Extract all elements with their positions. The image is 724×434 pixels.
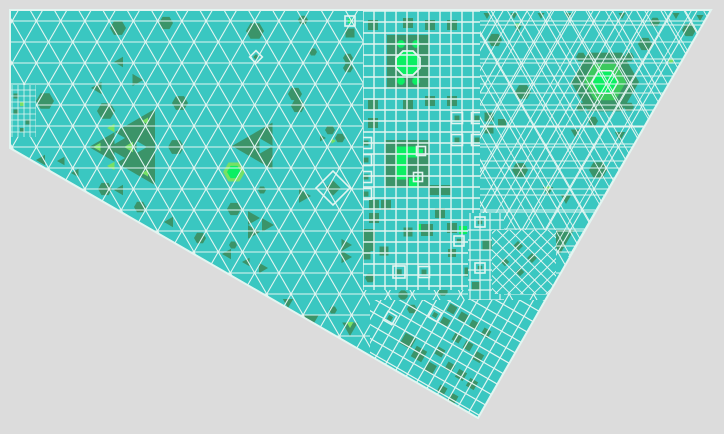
tiling-canvas: [0, 0, 724, 434]
feature-sq: [472, 282, 480, 290]
feature-sq: [459, 226, 467, 234]
feature-sq: [425, 96, 435, 106]
pattern-viewport: [0, 0, 724, 434]
feature-sq: [380, 247, 389, 256]
feature-sq: [397, 169, 408, 180]
feature-sq: [403, 100, 413, 110]
feature-sq: [20, 102, 24, 106]
feature-sq: [397, 147, 408, 158]
feature-oct: [397, 77, 404, 84]
feature-sq: [368, 100, 378, 110]
feature-sq: [20, 128, 24, 132]
feature-sq: [368, 118, 378, 128]
feature-sq: [421, 224, 433, 236]
feature-oct: [398, 290, 407, 299]
feature-sq: [404, 228, 413, 237]
feature-sq: [447, 96, 457, 106]
feature-sq: [403, 18, 413, 28]
feature-sq: [397, 158, 408, 169]
